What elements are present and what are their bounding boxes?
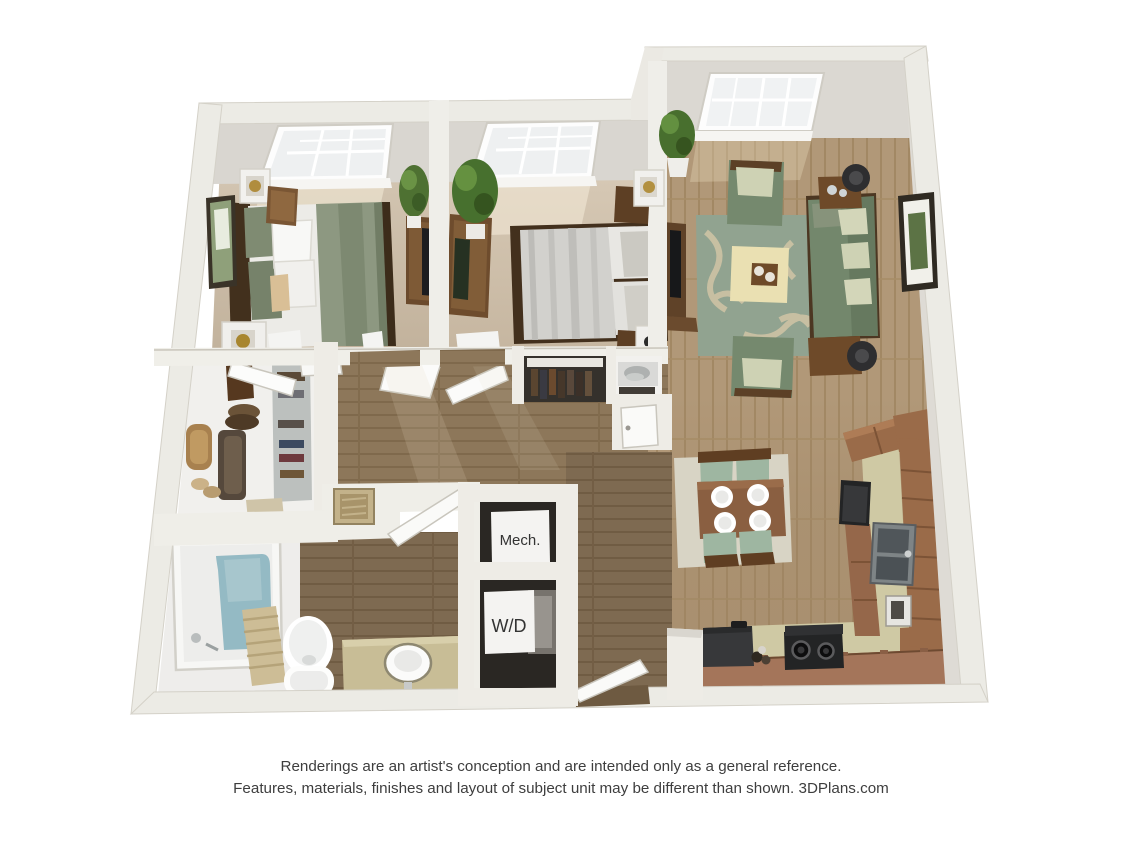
svg-text:Mech.: Mech. bbox=[500, 532, 541, 549]
svg-text:W/D: W/D bbox=[492, 616, 527, 636]
svg-text:Renderings are an artist's con: Renderings are an artist's conception an… bbox=[281, 758, 842, 775]
svg-text:Features, materials, finishes: Features, materials, finishes and layout… bbox=[233, 780, 889, 797]
